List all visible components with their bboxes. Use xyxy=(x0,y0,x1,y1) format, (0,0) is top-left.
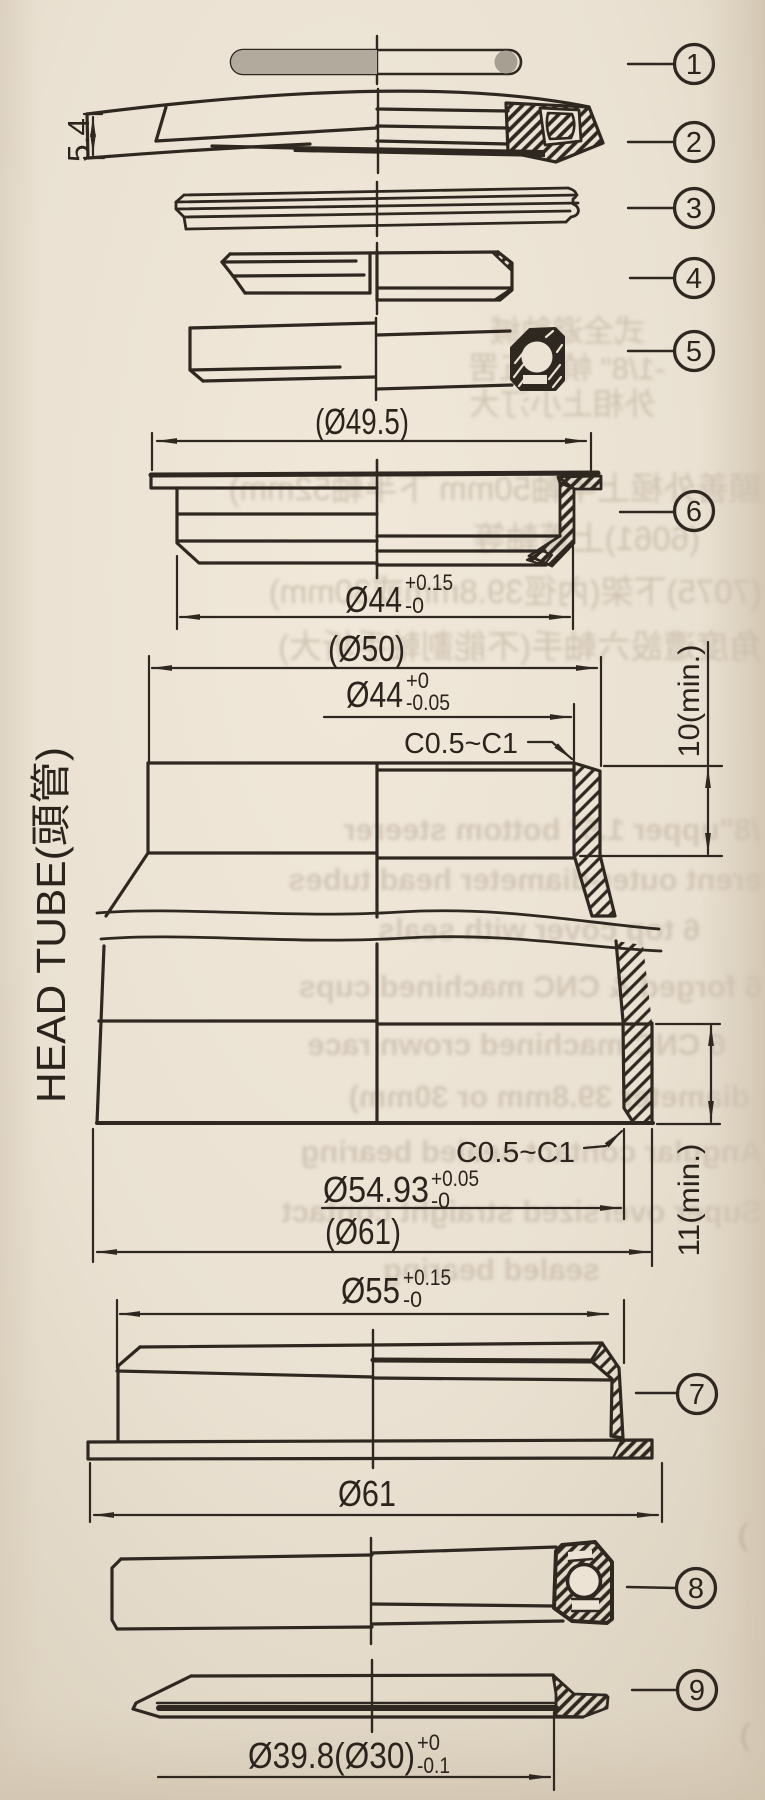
svg-text:11(min.): 11(min.) xyxy=(673,1144,706,1257)
svg-text:+0: +0 xyxy=(417,1730,440,1755)
svg-text:5.4: 5.4 xyxy=(61,118,96,162)
svg-text:-0: -0 xyxy=(405,593,424,618)
svg-text:(: ( xyxy=(738,1519,748,1552)
svg-text:(Ø61): (Ø61) xyxy=(325,1211,401,1252)
svg-text:Ø55: Ø55 xyxy=(341,1270,400,1311)
svg-text:6: 6 xyxy=(686,496,702,528)
svg-text:Ø54.93: Ø54.93 xyxy=(323,1169,429,1210)
svg-text:式全避蝕緘: 式全避蝕緘 xyxy=(490,314,645,349)
svg-text:(7075)下架(內徑39.8mm或30mm): (7075)下架(內徑39.8mm或30mm) xyxy=(269,573,762,610)
svg-text:5: 5 xyxy=(686,336,702,368)
svg-text:1: 1 xyxy=(686,49,702,81)
svg-text:4: 4 xyxy=(686,263,702,295)
svg-text:6 forged & CNC machined cups: 6 forged & CNC machined cups xyxy=(299,969,762,1004)
svg-text:(Ø50): (Ø50) xyxy=(328,628,405,669)
svg-text:(: ( xyxy=(740,1719,750,1752)
svg-text:Ø61: Ø61 xyxy=(338,1473,396,1514)
svg-text:-1/8" 幀又五罟: -1/8" 幀又五罟 xyxy=(468,351,665,386)
svg-text:6 CNC machined crown race: 6 CNC machined crown race xyxy=(307,1027,726,1062)
svg-text:diameter 39.8mm or 30mm): diameter 39.8mm or 30mm) xyxy=(349,1079,750,1114)
svg-text:3: 3 xyxy=(686,193,702,225)
svg-text:C0.5~C1: C0.5~C1 xyxy=(404,728,518,760)
svg-text:-0.1: -0.1 xyxy=(417,1753,450,1778)
svg-text:(Ø49.5): (Ø49.5) xyxy=(315,401,409,442)
svg-text:-0: -0 xyxy=(431,1188,450,1213)
svg-text:Ø39.8(Ø30): Ø39.8(Ø30) xyxy=(248,1735,415,1776)
svg-text:7: 7 xyxy=(689,1379,705,1411)
svg-text:C0.5~C1: C0.5~C1 xyxy=(456,1137,575,1169)
svg-text:+0.15: +0.15 xyxy=(405,570,453,595)
svg-text:8: 8 xyxy=(688,1573,704,1605)
svg-text:2: 2 xyxy=(686,127,702,159)
svg-text:外相上小汀大: 外相上小汀大 xyxy=(469,387,655,422)
svg-text:-0.05: -0.05 xyxy=(406,690,450,715)
svg-text:10(min.): 10(min.) xyxy=(673,645,706,758)
svg-text:HEAD TUBE(頭管): HEAD TUBE(頭管) xyxy=(28,747,74,1103)
svg-text:erent outer-diameter head tube: erent outer-diameter head tubes xyxy=(288,862,762,897)
svg-text:/8"upper 1.5° bottom steerer: /8"upper 1.5° bottom steerer xyxy=(344,812,760,847)
svg-text:-0: -0 xyxy=(403,1287,422,1312)
svg-text:Ø44: Ø44 xyxy=(345,579,402,620)
svg-text:Ø44: Ø44 xyxy=(346,674,403,715)
svg-text:9: 9 xyxy=(689,1675,705,1707)
